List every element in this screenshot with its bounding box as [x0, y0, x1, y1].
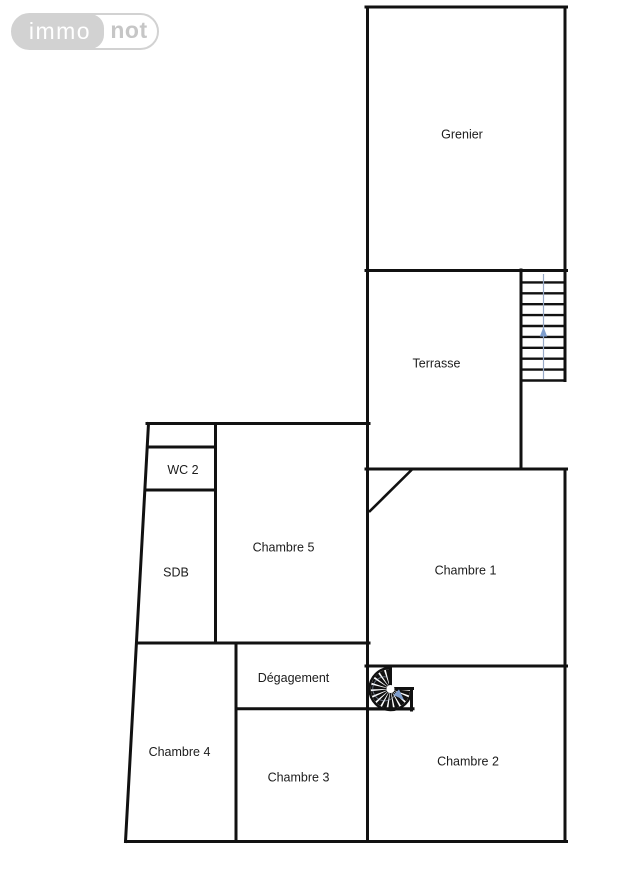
svg-text:Chambre 2: Chambre 2	[437, 755, 499, 769]
svg-text:Chambre 3: Chambre 3	[268, 771, 330, 785]
svg-text:SDB: SDB	[163, 566, 189, 580]
svg-text:Chambre 1: Chambre 1	[435, 564, 497, 578]
svg-text:Terrasse: Terrasse	[413, 357, 461, 371]
svg-text:Chambre 5: Chambre 5	[253, 541, 315, 555]
svg-text:Chambre 4: Chambre 4	[149, 745, 211, 759]
svg-text:WC 2: WC 2	[167, 463, 198, 477]
svg-text:Grenier: Grenier	[441, 128, 483, 142]
svg-text:Dégagement: Dégagement	[258, 671, 330, 685]
